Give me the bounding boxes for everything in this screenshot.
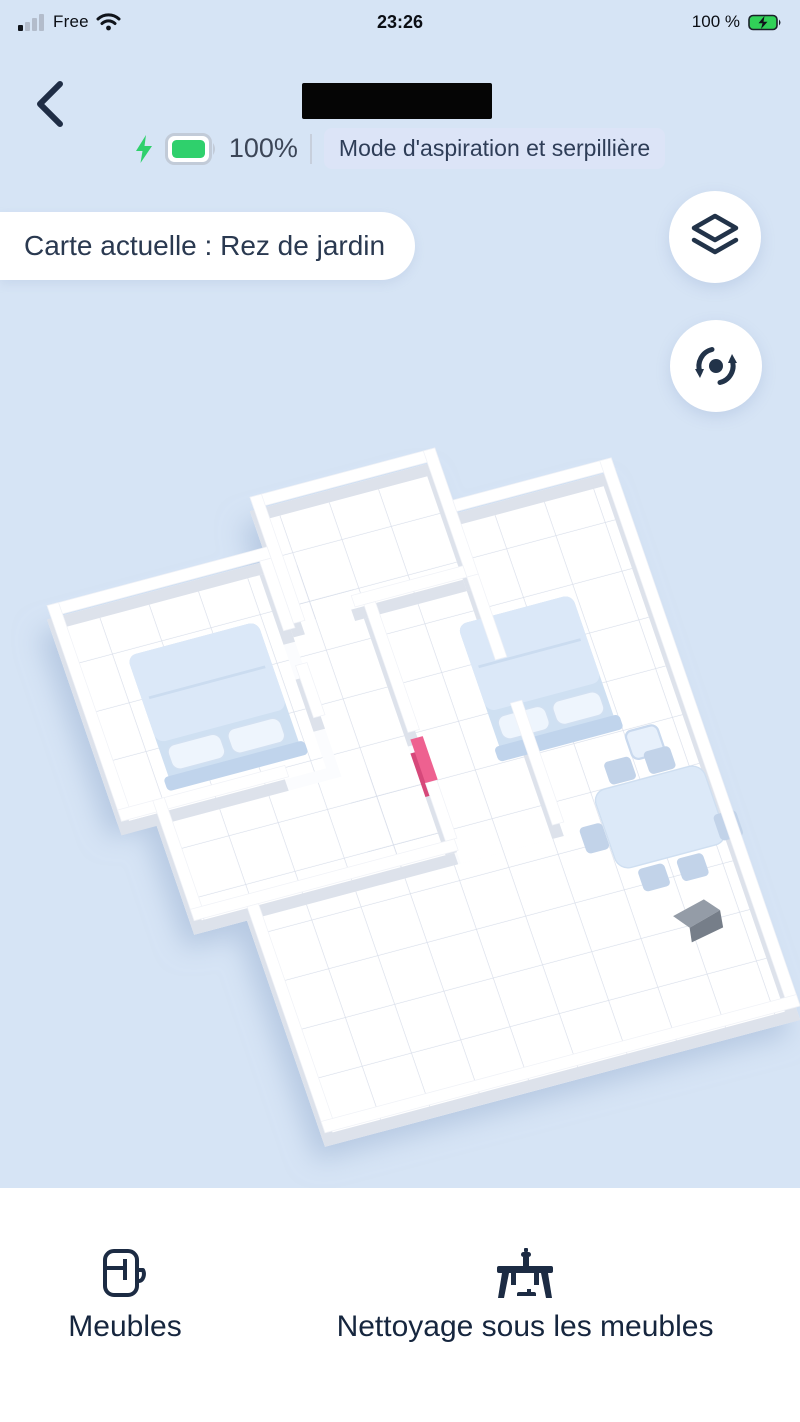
furniture-button[interactable]: Meubles [40, 1248, 210, 1344]
robot-vacuum-map-screen: Free 23:26 100 % [0, 0, 800, 1422]
clean-under-furniture-button[interactable]: Nettoyage sous les meubles [300, 1248, 750, 1344]
battery-percent-label: 100 % [692, 12, 740, 32]
table-with-robot-icon [494, 1248, 556, 1300]
bottom-action-bar: Meubles Nettoyage sous les meubles [0, 1188, 800, 1422]
battery-charging-icon [748, 14, 782, 31]
clean-under-furniture-label: Nettoyage sous les meubles [337, 1310, 714, 1344]
status-bar-right: 100 % [692, 12, 782, 32]
furniture-cabinet-icon [97, 1248, 153, 1300]
furniture-button-label: Meubles [68, 1310, 181, 1344]
